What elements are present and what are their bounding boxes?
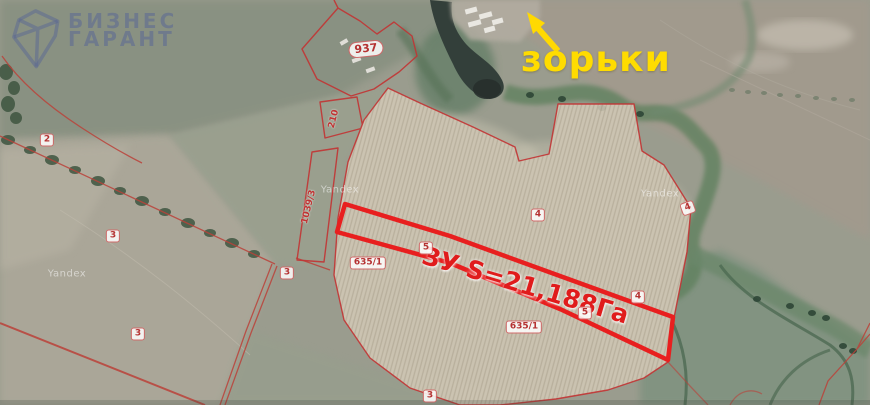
parcel-label-3: 3 <box>131 328 145 341</box>
parcel-label-4: 4 <box>531 209 545 222</box>
parcel-label-635-1: 635/1 <box>506 321 542 334</box>
parcel-label-3: 3 <box>106 230 120 243</box>
parcel-label-3: 3 <box>280 267 294 280</box>
yandex-watermark: Yandex <box>321 185 359 196</box>
logo-line2: ГАРАНТ <box>68 30 177 48</box>
parcel-label-4: 4 <box>631 291 645 304</box>
parcel-label-5: 5 <box>578 307 592 320</box>
business-garant-watermark: БИЗНЕС ГАРАНТ <box>10 6 177 70</box>
parcel-label-5: 5 <box>419 242 433 255</box>
yandex-watermark: Yandex <box>48 269 86 280</box>
callout-place-label: зорьки <box>521 42 671 78</box>
map-viewport[interactable]: БИЗНЕС ГАРАНТ зорьки ЗУ S=21,188Га 2 3 3… <box>0 0 870 405</box>
parcel-label-635-1: 635/1 <box>350 257 386 270</box>
yandex-watermark: Yandex <box>641 189 679 200</box>
gem-icon <box>10 6 64 70</box>
parcel-label-2: 2 <box>40 134 54 147</box>
parcel-label-3: 3 <box>423 390 437 403</box>
